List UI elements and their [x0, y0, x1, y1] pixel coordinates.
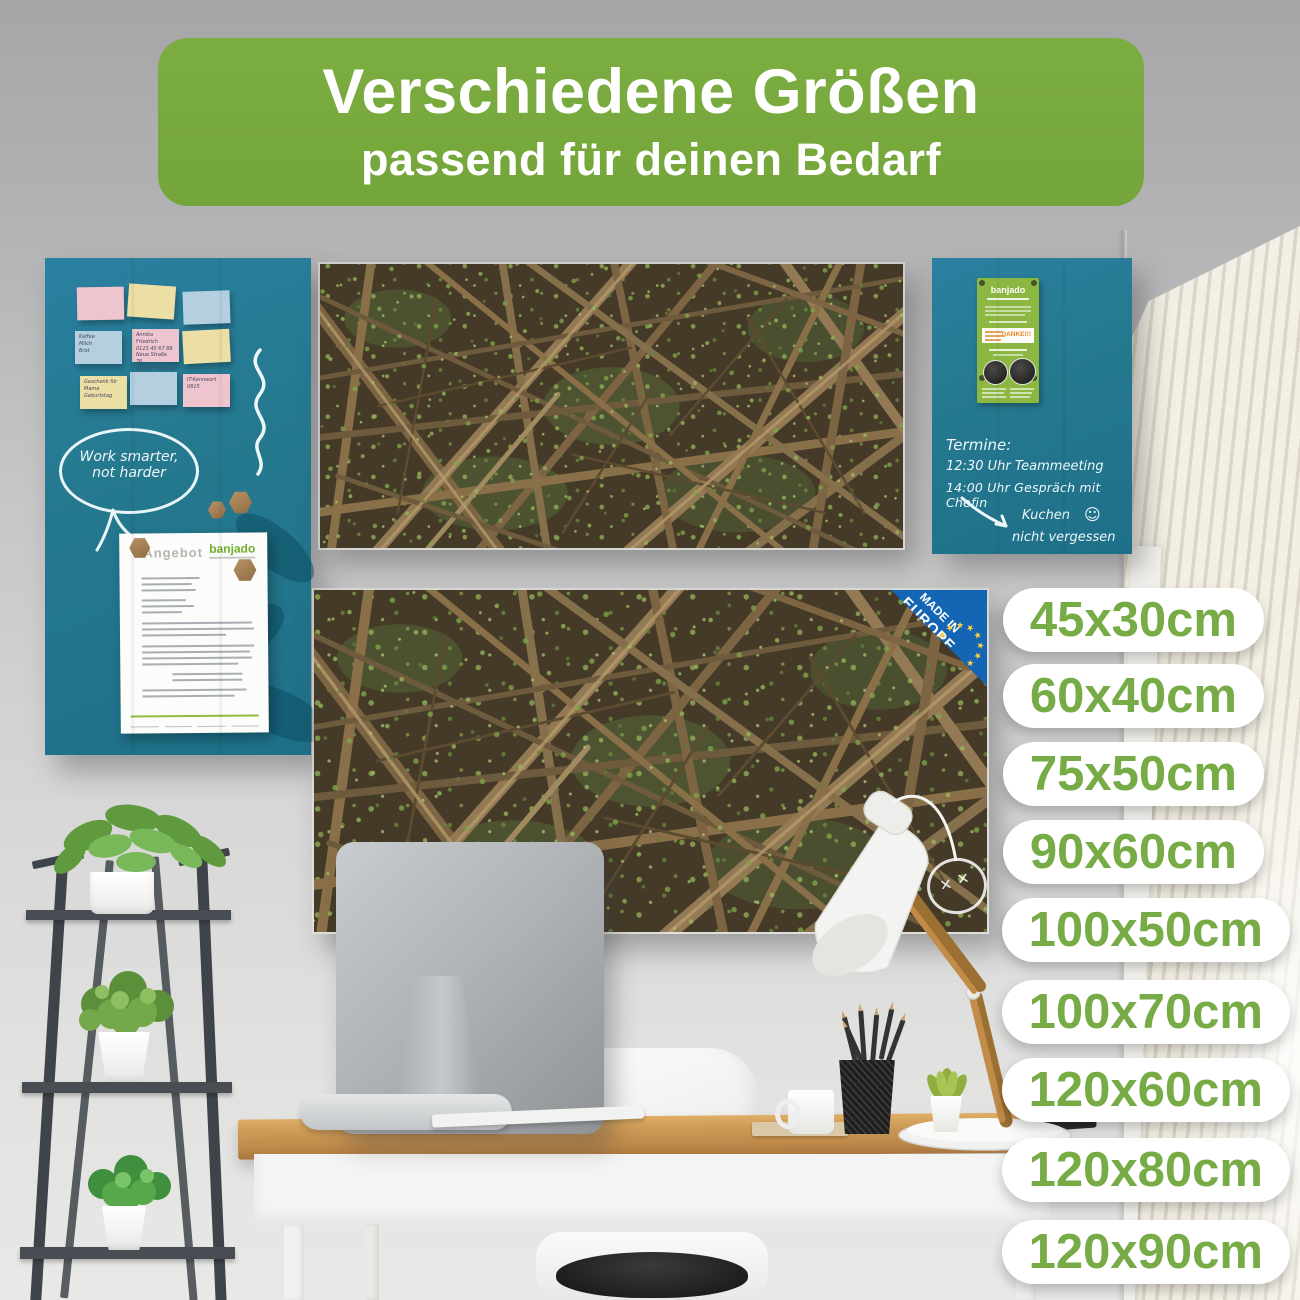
arrow-doodle [958, 494, 1022, 536]
offer-document: Angebot banjado [119, 532, 269, 733]
bush-plant [68, 962, 184, 1040]
magnet-board-right: banjado DANKE!!! Termine: 12:30 Uhr Team… [932, 258, 1132, 554]
bubble-text: not harder [62, 465, 196, 481]
note-text: IT-Kennwort 0815 [183, 374, 230, 394]
size-pill: 100x50cm [1002, 898, 1290, 962]
header-banner: Verschiedene Größen passend für deinen B… [158, 38, 1144, 206]
hexagon-magnet [233, 558, 256, 581]
banner-title: Verschiedene Größen [158, 56, 1144, 128]
size-pill: 45x30cm [1003, 588, 1264, 652]
magnet-dot [979, 375, 985, 381]
reminder-line: Kuchen [1022, 508, 1070, 523]
magnet-board-top [318, 262, 905, 550]
size-pill: 120x80cm [1002, 1138, 1290, 1202]
note-text: Annika Friedrich 0123 45 67 89 Neue Stra… [132, 329, 179, 376]
flyer-thanks-box: DANKE!!! [982, 328, 1034, 343]
shelf-board [22, 1082, 232, 1093]
plant-pot [100, 1206, 148, 1250]
desk-leg [284, 1224, 304, 1300]
note-text: Kaffee Milch Brot [75, 331, 122, 357]
size-pill: 120x60cm [1002, 1058, 1290, 1122]
magnet-dot [1031, 280, 1037, 286]
sticky-note [182, 329, 231, 364]
termine-line: 12:30 Uhr Teammeeting [946, 459, 1104, 474]
sticky-note [182, 290, 230, 325]
seat-cushion [556, 1252, 748, 1298]
desk-leg [366, 1224, 379, 1300]
hexagon-magnet [208, 501, 226, 519]
reminder-line: nicht vergessen [1012, 530, 1116, 545]
plant-pot [90, 872, 154, 914]
chair-seat [536, 1232, 768, 1300]
speech-bubble: Work smarter, not harder [59, 428, 199, 514]
sticky-note [127, 283, 176, 319]
sticky-note: Geschenk für Mama Geburtstag [80, 376, 127, 409]
dog-photo [983, 360, 1008, 385]
magnet-dot [979, 280, 985, 286]
brand-tagline [209, 556, 255, 558]
document-body [119, 572, 256, 697]
sticky-note: Kaffee Milch Brot [75, 331, 122, 364]
flyer-brand: banjado [977, 285, 1039, 295]
document-title: Angebot [143, 545, 203, 561]
banner-subtitle: passend für deinen Bedarf [158, 134, 1144, 186]
sticky-note [77, 287, 125, 321]
plant-pot [96, 1032, 152, 1082]
size-pill: 60x40cm [1003, 664, 1264, 728]
product-scene: Verschiedene Größen passend für deinen B… [0, 0, 1300, 1300]
magnet-board-left: Kaffee Milch Brot Annika Friedrich 0123 … [45, 258, 311, 755]
pothos-plant [48, 796, 238, 882]
size-pill: 100x70cm [1002, 980, 1290, 1044]
magnet-dot [1031, 375, 1037, 381]
sticky-note [130, 372, 177, 405]
bubble-text: Work smarter, [62, 449, 196, 465]
banjado-flyer: banjado DANKE!!! [977, 278, 1039, 403]
hexagon-magnet [229, 491, 252, 514]
shelf-rail [151, 856, 198, 1300]
termine-line: 14:00 Uhr Gespräch mit Chefin [946, 480, 1132, 510]
termine-heading: Termine: [946, 436, 1011, 454]
note-text: Geschenk für Mama Geburtstag [80, 376, 127, 402]
size-pill: 120x90cm [1002, 1220, 1290, 1284]
sticky-note: Annika Friedrich 0123 45 67 89 Neue Stra… [132, 329, 179, 362]
bush-plant [75, 1146, 179, 1212]
plant-shelf [20, 810, 250, 1300]
leaf-shadow [165, 488, 315, 758]
smiley-icon: ☺ [1084, 505, 1101, 524]
danke-text: DANKE!!! [1001, 331, 1031, 338]
size-pill: 75x50cm [1003, 742, 1264, 806]
document-footer-rule [131, 714, 259, 718]
sticky-note: IT-Kennwort 0815 [183, 374, 230, 407]
shelf-rail [30, 856, 68, 1300]
size-pill: 90x60cm [1003, 820, 1264, 884]
roots-photo [320, 264, 903, 548]
bubble-tail [93, 508, 133, 554]
brand-logo: banjado [209, 541, 255, 555]
document-footer [131, 725, 259, 728]
squiggle-doodle [248, 348, 278, 478]
hexagon-magnet [129, 537, 150, 558]
dog-photo [1009, 358, 1036, 385]
